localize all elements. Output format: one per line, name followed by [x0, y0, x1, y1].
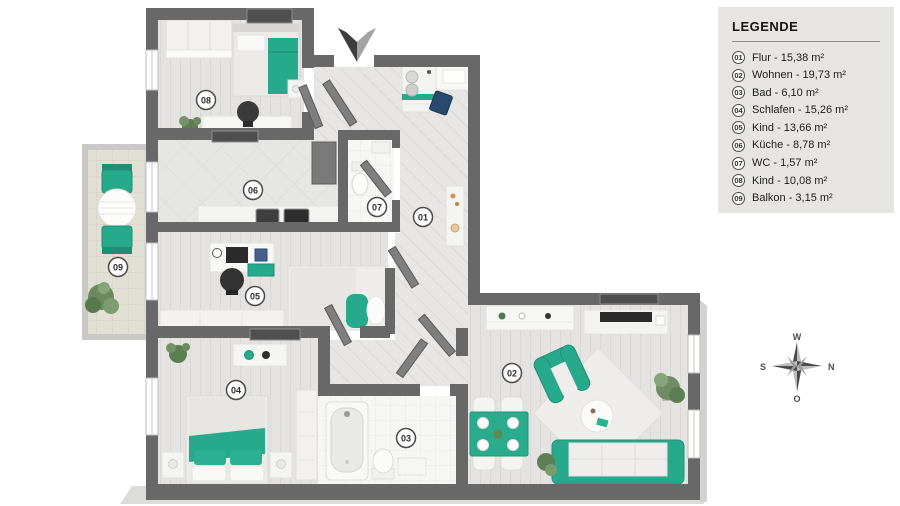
badge-08: 08 — [197, 91, 216, 110]
wardrobe — [166, 20, 232, 54]
legend-item-label: WC - 1,57 m² — [752, 157, 817, 169]
legend-item-label: Kind - 13,66 m² — [752, 122, 827, 134]
badge-01: 01 — [414, 208, 433, 227]
coffee-table — [581, 400, 613, 432]
legend-item-label: Schlafen - 15,26 m² — [752, 104, 848, 116]
legend-item-label: Wohnen - 19,73 m² — [752, 69, 846, 81]
svg-text:07: 07 — [372, 203, 382, 213]
legend-number-badge: 06 — [732, 139, 745, 152]
desk-chair — [220, 268, 244, 292]
sofa — [552, 440, 684, 484]
desk-chair — [237, 101, 259, 123]
legend-item-kueche: 06Küche - 8,78 m² — [732, 139, 880, 152]
toilet — [352, 173, 368, 195]
badge-04: 04 — [227, 381, 246, 400]
svg-text:05: 05 — [250, 292, 260, 302]
monitor — [226, 247, 248, 263]
legend-item-kind5: 05Kind - 13,66 m² — [732, 121, 880, 134]
legend-number-badge: 08 — [732, 174, 745, 187]
legend-number-badge: 05 — [732, 121, 745, 134]
legend-item-wohnen: 02Wohnen - 19,73 m² — [732, 69, 880, 82]
legend-item-kind8: 08Kind - 10,08 m² — [732, 174, 880, 187]
svg-text:04: 04 — [231, 386, 241, 396]
svg-text:01: 01 — [418, 213, 428, 223]
legend-panel: LEGENDE 01Flur - 15,38 m² 02Wohnen - 19,… — [718, 7, 894, 213]
compass-east-label: O — [793, 394, 800, 404]
badge-06: 06 — [244, 181, 263, 200]
bath-cabinet — [398, 458, 426, 475]
svg-text:06: 06 — [248, 186, 258, 196]
svg-text:03: 03 — [401, 434, 411, 444]
legend-item-schlafen: 04Schlafen - 15,26 m² — [732, 104, 880, 117]
compass-north-label: N — [828, 362, 835, 372]
kitchen-door-open — [312, 142, 336, 184]
legend-number-badge: 02 — [732, 69, 745, 82]
svg-text:02: 02 — [507, 369, 517, 379]
dresser — [233, 344, 287, 366]
legend-item-label: Bad - 6,10 m² — [752, 87, 819, 99]
compass-south-label: S — [760, 362, 766, 372]
svg-text:08: 08 — [201, 96, 211, 106]
svg-text:09: 09 — [113, 263, 123, 273]
legend-number-badge: 09 — [732, 192, 745, 205]
kitchen-sink — [256, 209, 279, 223]
legend-item-label: Küche - 8,78 m² — [752, 139, 830, 151]
bathtub — [326, 402, 368, 480]
badge-05: 05 — [246, 287, 265, 306]
legend-item-bad: 03Bad - 6,10 m² — [732, 86, 880, 99]
legend-number-badge: 01 — [732, 51, 745, 64]
toilet — [372, 449, 394, 479]
badge-07: 07 — [368, 198, 387, 217]
legend-number-badge: 03 — [732, 86, 745, 99]
legend-number-badge: 07 — [732, 157, 745, 170]
double-bed — [186, 396, 268, 484]
legend-item-label: Flur - 15,38 m² — [752, 52, 824, 64]
legend-item-balkon: 09Balkon - 3,15 m² — [732, 192, 880, 205]
kitchen-stove — [284, 209, 309, 223]
bed-pillow-teal — [346, 294, 368, 328]
legend-item-wc: 07WC - 1,57 m² — [732, 157, 880, 170]
room-balkon — [82, 144, 152, 340]
legend-number-badge: 04 — [732, 104, 745, 117]
badge-03: 03 — [397, 429, 416, 448]
balcony-chair — [102, 226, 132, 249]
compass-rose-icon: W N S O — [760, 332, 835, 404]
legend-item-label: Kind - 10,08 m² — [752, 175, 827, 187]
compass-west-label: W — [793, 332, 802, 342]
badge-02: 02 — [503, 364, 522, 383]
drawer-unit — [248, 264, 274, 276]
floorplan-screenshot: 01 02 03 04 05 06 07 08 09 W N S O LEGEN… — [0, 0, 900, 506]
entrance-arrow-icon — [338, 28, 376, 62]
tv — [600, 312, 652, 322]
legend-divider — [732, 41, 880, 42]
legend-item-flur: 01Flur - 15,38 m² — [732, 51, 880, 64]
legend-title: LEGENDE — [732, 19, 880, 34]
wardrobe — [296, 390, 317, 480]
wc-sink — [372, 142, 390, 153]
badge-09: 09 — [109, 258, 128, 277]
legend-item-label: Balkon - 3,15 m² — [752, 192, 833, 204]
